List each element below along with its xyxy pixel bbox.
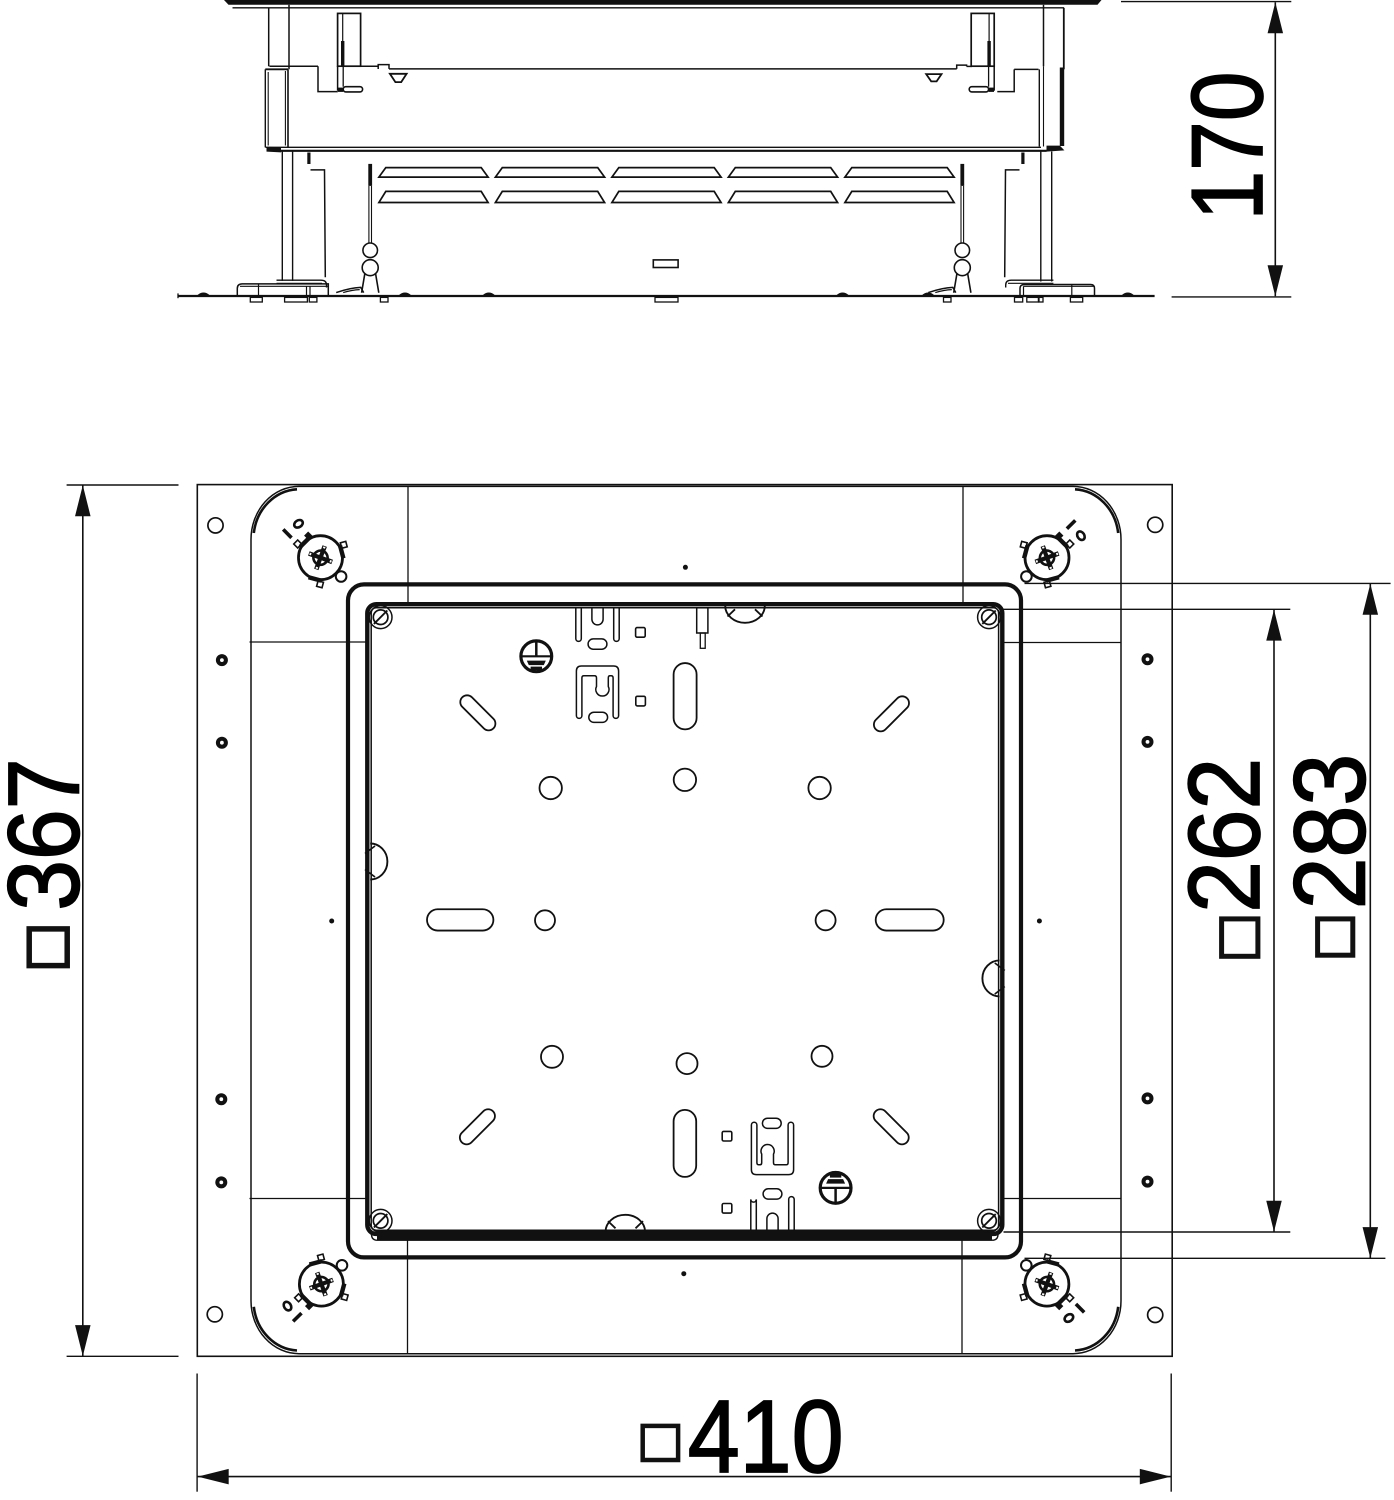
svg-text:170: 170 [1172,72,1284,221]
svg-text:262: 262 [1169,758,1281,913]
svg-text:410: 410 [688,1379,844,1494]
svg-text:283: 283 [1275,754,1387,910]
svg-text:367: 367 [0,758,101,910]
